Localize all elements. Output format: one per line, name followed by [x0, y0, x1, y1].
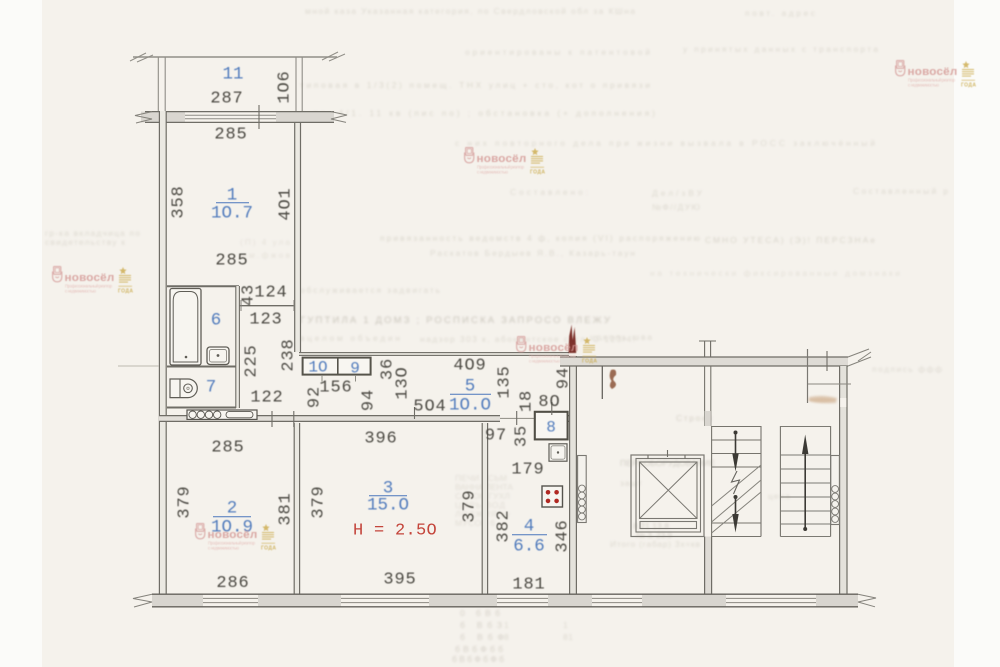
svg-text:122: 122	[250, 389, 283, 408]
svg-text:225: 225	[243, 344, 262, 377]
svg-text:ГУПТИЛА 1 ДОМЗ ; РОСПИСКА ЗАПР: ГУПТИЛА 1 ДОМЗ ; РОСПИСКА ЗАПРОСО ВЛЕЖУ	[300, 315, 611, 326]
svg-text:5О4: 5О4	[413, 398, 446, 417]
svg-text:2: 2	[227, 499, 238, 519]
svg-text:396: 396	[364, 430, 397, 449]
svg-text:15.О: 15.О	[367, 496, 409, 516]
svg-text:(П) 4 ула: (П) 4 ула	[240, 237, 290, 247]
svg-text:бВбФбФб: бВбФбФб	[452, 654, 504, 664]
svg-text:285: 285	[214, 126, 247, 145]
svg-text:124: 124	[254, 284, 287, 303]
svg-text:5: 5	[465, 377, 476, 397]
svg-text:381: 381	[277, 492, 296, 525]
svg-text:4: 4	[524, 517, 535, 537]
svg-text:35: 35	[513, 425, 532, 447]
svg-text:97: 97	[485, 427, 507, 446]
svg-text:94: 94	[360, 389, 379, 411]
svg-text:цена: цена	[768, 491, 790, 501]
svg-text:179: 179	[511, 461, 544, 480]
svg-text:обслуживается задвигать: обслуживается задвигать	[300, 285, 441, 295]
svg-text:1: 1	[504, 620, 509, 630]
svg-text:1О.О: 1О.О	[449, 396, 491, 416]
svg-text:4О1: 4О1	[277, 187, 296, 220]
svg-text:6: 6	[211, 311, 222, 331]
svg-text:цоколь шва: цоколь шва	[590, 332, 652, 342]
svg-text:Н = 2.5О: Н = 2.5О	[353, 522, 437, 541]
svg-text:д-та, 4/1. 11 кв (пис по) ; об: д-та, 4/1. 11 кв (пис по) ; обстановка (…	[300, 108, 655, 118]
svg-text:18: 18	[518, 390, 537, 412]
svg-text:8О: 8О	[538, 393, 560, 412]
svg-text:238: 238	[280, 338, 299, 371]
svg-text:135: 135	[496, 365, 515, 398]
svg-text:№Ф//ДУЮ: №Ф//ДУЮ	[652, 202, 700, 212]
svg-text:мной каза Указанная категория: мной каза Указанная категория, по Свердл…	[305, 6, 635, 16]
svg-text:92: 92	[306, 386, 325, 408]
svg-text:1О.7: 1О.7	[211, 204, 253, 224]
svg-text:379: 379	[310, 485, 329, 518]
svg-text:379: 379	[176, 485, 195, 518]
svg-text:395: 395	[383, 571, 416, 590]
svg-text:286: 286	[216, 574, 249, 593]
svg-text:346: 346	[554, 519, 573, 552]
svg-text:привязанность ведомств 4 ф, ко: привязанность ведомств 4 ф, копия (VI) р…	[380, 233, 701, 243]
svg-text:1О: 1О	[308, 359, 327, 377]
svg-text:181: 181	[512, 576, 545, 595]
svg-text:358: 358	[170, 185, 189, 218]
svg-text:1: 1	[563, 620, 568, 630]
svg-text:43: 43	[240, 284, 259, 306]
svg-text:123: 123	[249, 311, 282, 330]
svg-text:13О: 13О	[394, 366, 413, 399]
svg-text:8: 8	[546, 419, 556, 437]
svg-text:285: 285	[215, 252, 248, 271]
svg-text:СМНО УТЕСА) (Э)! ПЕРСЗНАе: СМНО УТЕСА) (Э)! ПЕРСЗНАе	[705, 235, 875, 245]
svg-text:287: 287	[210, 90, 243, 109]
svg-text:6.6: 6.6	[513, 537, 545, 557]
svg-text:ам.фжов: ам.фжов	[242, 250, 290, 260]
svg-text:9: 9	[350, 360, 360, 378]
svg-text:7: 7	[206, 378, 217, 398]
svg-text:11: 11	[222, 65, 243, 85]
svg-text:свидетельству к: свидетельству к	[45, 237, 125, 247]
svg-text:8: 8	[504, 632, 509, 642]
svg-text:1О6: 1О6	[276, 70, 295, 103]
svg-text:382: 382	[495, 509, 514, 542]
svg-text:81: 81	[563, 632, 573, 642]
svg-text:Итого (габар) 3х=кв: Итого (габар) 3х=кв	[610, 539, 700, 549]
svg-text:94: 94	[555, 367, 574, 389]
svg-text:285: 285	[211, 439, 244, 458]
svg-text:4О9: 4О9	[453, 357, 486, 376]
svg-text:379: 379	[461, 489, 480, 522]
